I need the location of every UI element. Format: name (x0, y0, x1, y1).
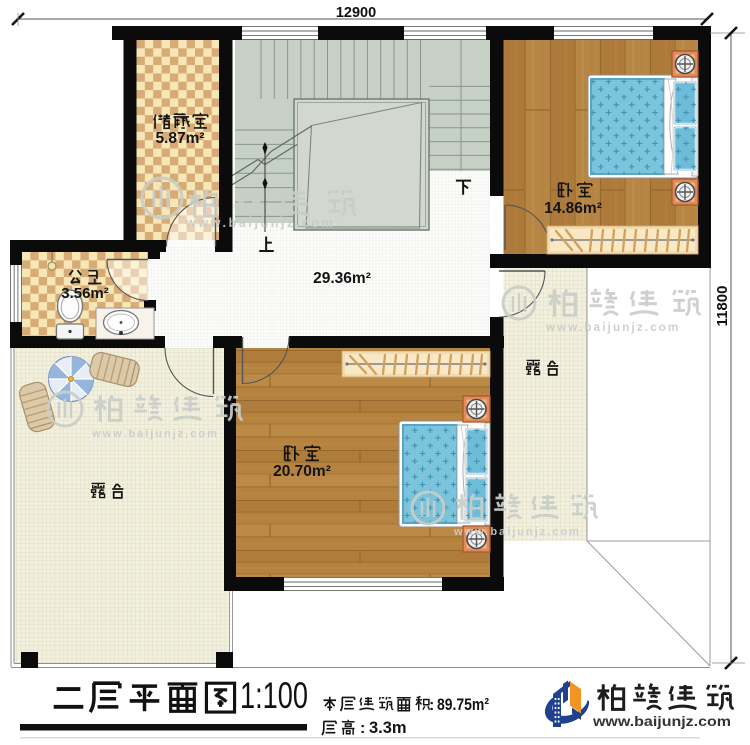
svg-text:5.87m²: 5.87m² (155, 130, 204, 147)
svg-text:20.70m²: 20.70m² (273, 463, 331, 480)
svg-text:3.56m²: 3.56m² (61, 285, 109, 302)
svg-text:3.3m: 3.3m (369, 719, 407, 737)
svg-text:89.75m²: 89.75m² (437, 696, 489, 714)
svg-text:www.baijunjz.com: www.baijunjz.com (453, 526, 581, 538)
svg-text:11800: 11800 (714, 286, 731, 327)
svg-text:www.baijunjz.com: www.baijunjz.com (592, 714, 731, 729)
svg-text:12900: 12900 (336, 5, 376, 21)
svg-text::: : (360, 720, 365, 737)
svg-text:www.baijunjz.com: www.baijunjz.com (185, 216, 335, 230)
svg-text:www.baijunjz.com: www.baijunjz.com (91, 428, 219, 440)
svg-text:29.36m²: 29.36m² (313, 270, 371, 287)
svg-text:1:100: 1:100 (240, 675, 308, 716)
svg-text:www.baijunjz.com: www.baijunjz.com (545, 322, 680, 334)
svg-text:14.86m²: 14.86m² (544, 200, 602, 217)
svg-text::: : (429, 697, 434, 714)
